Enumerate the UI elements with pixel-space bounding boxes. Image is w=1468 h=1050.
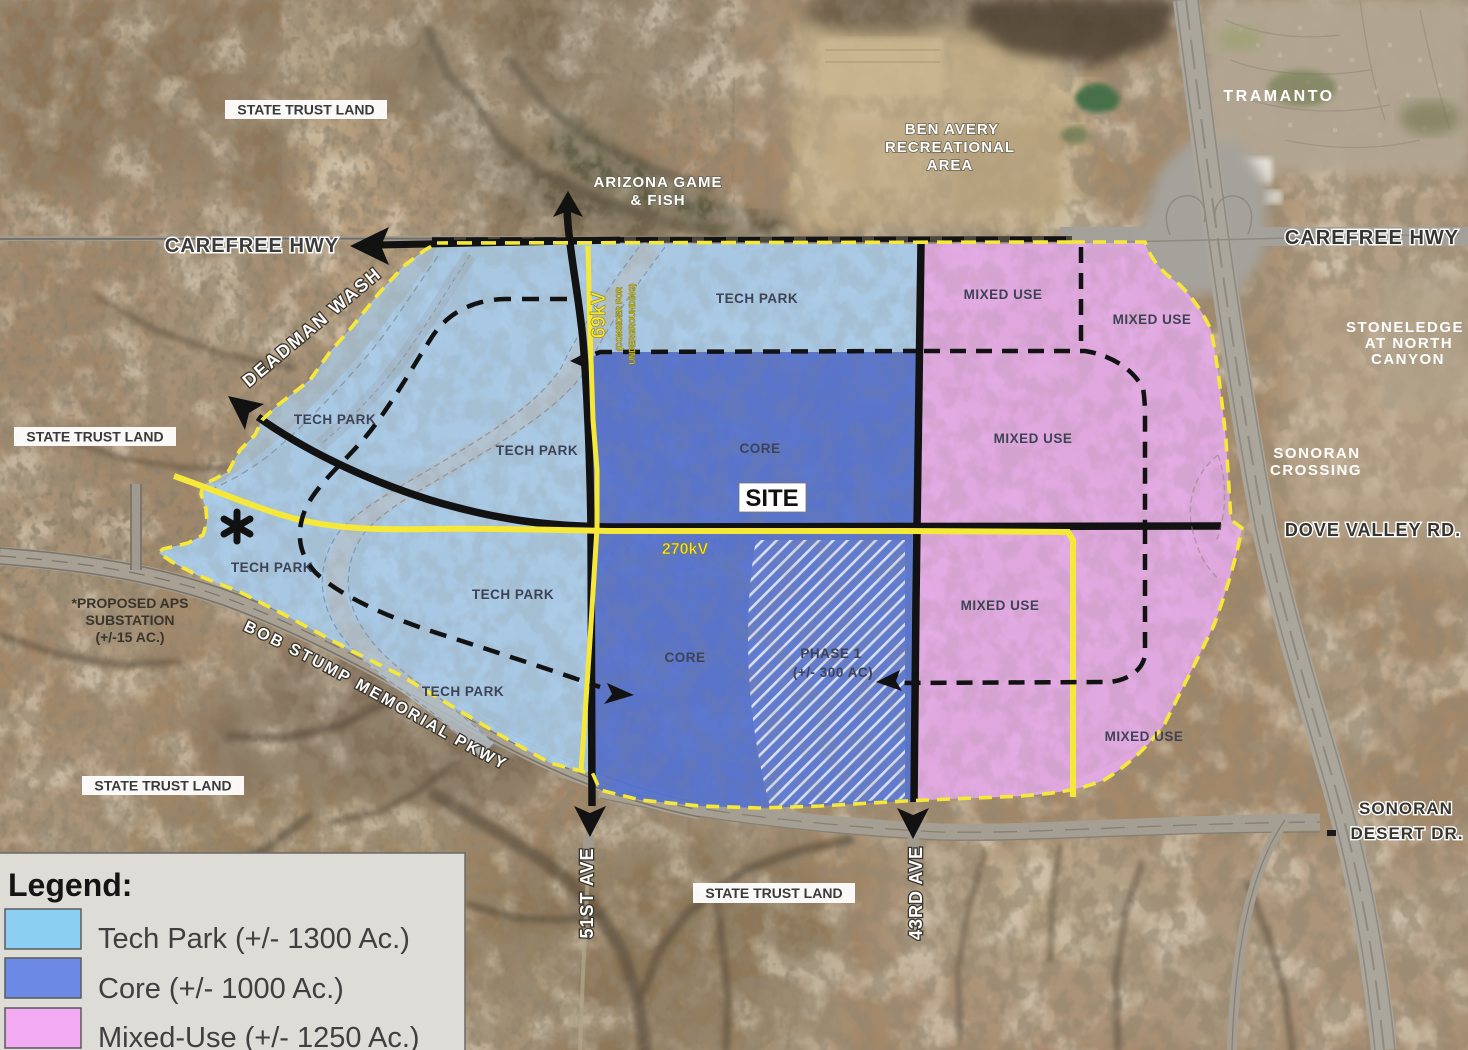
svg-text:UNDERGROUNDING): UNDERGROUNDING) (628, 283, 637, 364)
svg-text:CANYON: CANYON (1371, 351, 1445, 368)
svg-text:TECH PARK: TECH PARK (472, 587, 554, 602)
svg-text:STONELEDGE: STONELEDGE (1346, 319, 1464, 336)
svg-text:DESERT DR.: DESERT DR. (1351, 824, 1464, 843)
svg-text:43RD AVE: 43RD AVE (906, 846, 926, 940)
svg-text:*PROPOSED APS: *PROPOSED APS (72, 595, 189, 611)
svg-text:TECH PARK: TECH PARK (716, 291, 798, 306)
svg-text:DOVE VALLEY RD.: DOVE VALLEY RD. (1285, 520, 1461, 540)
svg-text:TECH PARK: TECH PARK (294, 412, 376, 427)
svg-text:TECH PARK: TECH PARK (496, 443, 578, 458)
svg-text:CAREFREE HWY: CAREFREE HWY (1285, 227, 1459, 249)
svg-text:TECH PARK: TECH PARK (422, 684, 504, 699)
svg-text:AT NORTH: AT NORTH (1365, 335, 1453, 352)
svg-text:(CONSIDER FOR: (CONSIDER FOR (615, 287, 624, 351)
svg-text:SONORAN: SONORAN (1273, 445, 1360, 462)
svg-text:TRAMANTO: TRAMANTO (1223, 88, 1334, 105)
svg-text:MIXED USE: MIXED USE (994, 431, 1073, 446)
svg-text:TECH PARK: TECH PARK (231, 560, 313, 575)
svg-text:(+/- 300 AC): (+/- 300 AC) (793, 665, 873, 680)
svg-text:69kV: 69kV (588, 291, 610, 338)
svg-text:Core (+/- 1000 Ac.): Core (+/- 1000 Ac.) (98, 973, 344, 1005)
svg-text:CORE: CORE (664, 650, 705, 665)
svg-text:STATE TRUST LAND: STATE TRUST LAND (26, 429, 163, 445)
svg-text:MIXED USE: MIXED USE (1105, 729, 1184, 744)
svg-text:BEN AVERY: BEN AVERY (905, 121, 999, 138)
svg-text:Tech Park (+/- 1300 Ac.): Tech Park (+/- 1300 Ac.) (98, 923, 410, 955)
svg-text:MIXED USE: MIXED USE (961, 598, 1040, 613)
svg-text:SUBSTATION: SUBSTATION (86, 612, 175, 628)
svg-text:PHASE 1: PHASE 1 (800, 646, 861, 661)
svg-text:MIXED USE: MIXED USE (1113, 312, 1192, 327)
svg-text:RECREATIONAL: RECREATIONAL (885, 139, 1015, 156)
svg-text:(+/-15 AC.): (+/-15 AC.) (95, 629, 164, 645)
svg-text:270kV: 270kV (662, 541, 709, 558)
svg-text:Mixed-Use (+/- 1250 Ac.): Mixed-Use (+/- 1250 Ac.) (98, 1022, 420, 1050)
svg-text:MIXED USE: MIXED USE (964, 287, 1043, 302)
svg-text:SITE: SITE (745, 485, 798, 512)
svg-text:STATE TRUST LAND: STATE TRUST LAND (94, 778, 231, 794)
svg-text:SONORAN: SONORAN (1359, 799, 1453, 818)
svg-text:AREA: AREA (927, 157, 974, 174)
svg-text:ARIZONA GAME: ARIZONA GAME (594, 174, 723, 191)
svg-text:CROSSING: CROSSING (1270, 462, 1362, 479)
svg-text:& FISH: & FISH (630, 192, 685, 209)
svg-text:STATE TRUST LAND: STATE TRUST LAND (705, 885, 842, 901)
svg-text:CORE: CORE (739, 441, 780, 456)
svg-text:51ST AVE: 51ST AVE (577, 847, 597, 938)
svg-text:Legend:: Legend: (8, 867, 132, 903)
svg-text:STATE TRUST LAND: STATE TRUST LAND (237, 102, 374, 118)
svg-text:CAREFREE HWY: CAREFREE HWY (165, 235, 339, 257)
